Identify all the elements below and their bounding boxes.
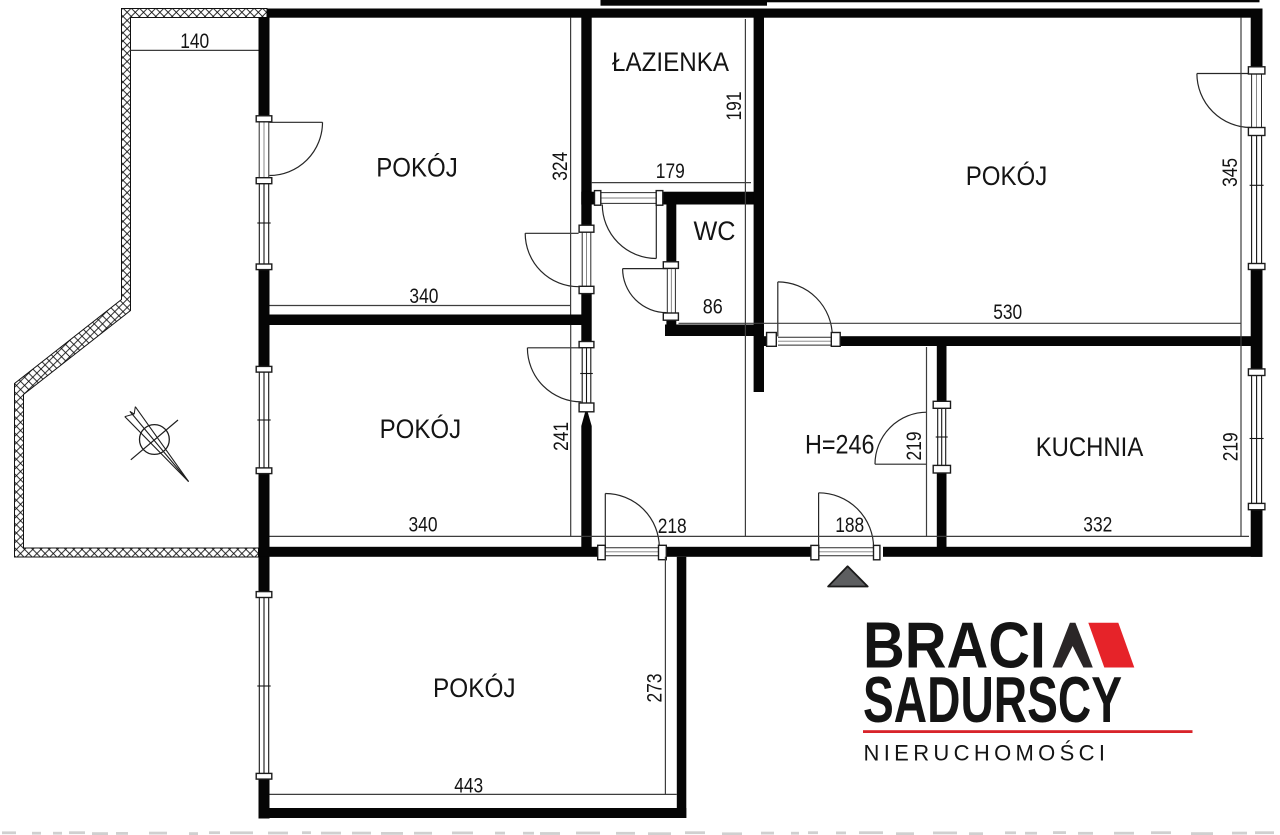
svg-text:443: 443 — [454, 774, 483, 797]
svg-text:340: 340 — [409, 285, 438, 308]
svg-text:POKÓJ: POKÓJ — [433, 672, 516, 703]
svg-text:H=246: H=246 — [805, 430, 875, 460]
svg-text:273: 273 — [643, 674, 666, 703]
svg-text:KUCHNIA: KUCHNIA — [1036, 432, 1144, 462]
svg-text:POKÓJ: POKÓJ — [380, 413, 462, 444]
svg-text:218: 218 — [658, 515, 687, 538]
svg-text:188: 188 — [835, 514, 864, 537]
svg-text:86: 86 — [703, 295, 723, 318]
svg-text:POKÓJ: POKÓJ — [376, 151, 458, 182]
svg-text:191: 191 — [723, 92, 746, 121]
svg-text:332: 332 — [1083, 514, 1112, 537]
svg-text:340: 340 — [409, 514, 438, 537]
svg-text:140: 140 — [180, 30, 209, 53]
svg-text:179: 179 — [656, 160, 685, 183]
svg-text:219: 219 — [1220, 432, 1243, 461]
svg-text:530: 530 — [993, 301, 1022, 324]
svg-text:241: 241 — [550, 422, 573, 451]
svg-text:ŁAZIENKA: ŁAZIENKA — [612, 47, 729, 77]
svg-text:WC: WC — [694, 216, 736, 246]
svg-text:POKÓJ: POKÓJ — [966, 160, 1048, 191]
svg-text:345: 345 — [1219, 158, 1242, 187]
svg-text:219: 219 — [903, 432, 926, 461]
svg-text:SADURSCY: SADURSCY — [863, 664, 1122, 736]
svg-text:324: 324 — [549, 152, 572, 181]
svg-text:NIERUCHOMOŚCI: NIERUCHOMOŚCI — [864, 740, 1106, 765]
